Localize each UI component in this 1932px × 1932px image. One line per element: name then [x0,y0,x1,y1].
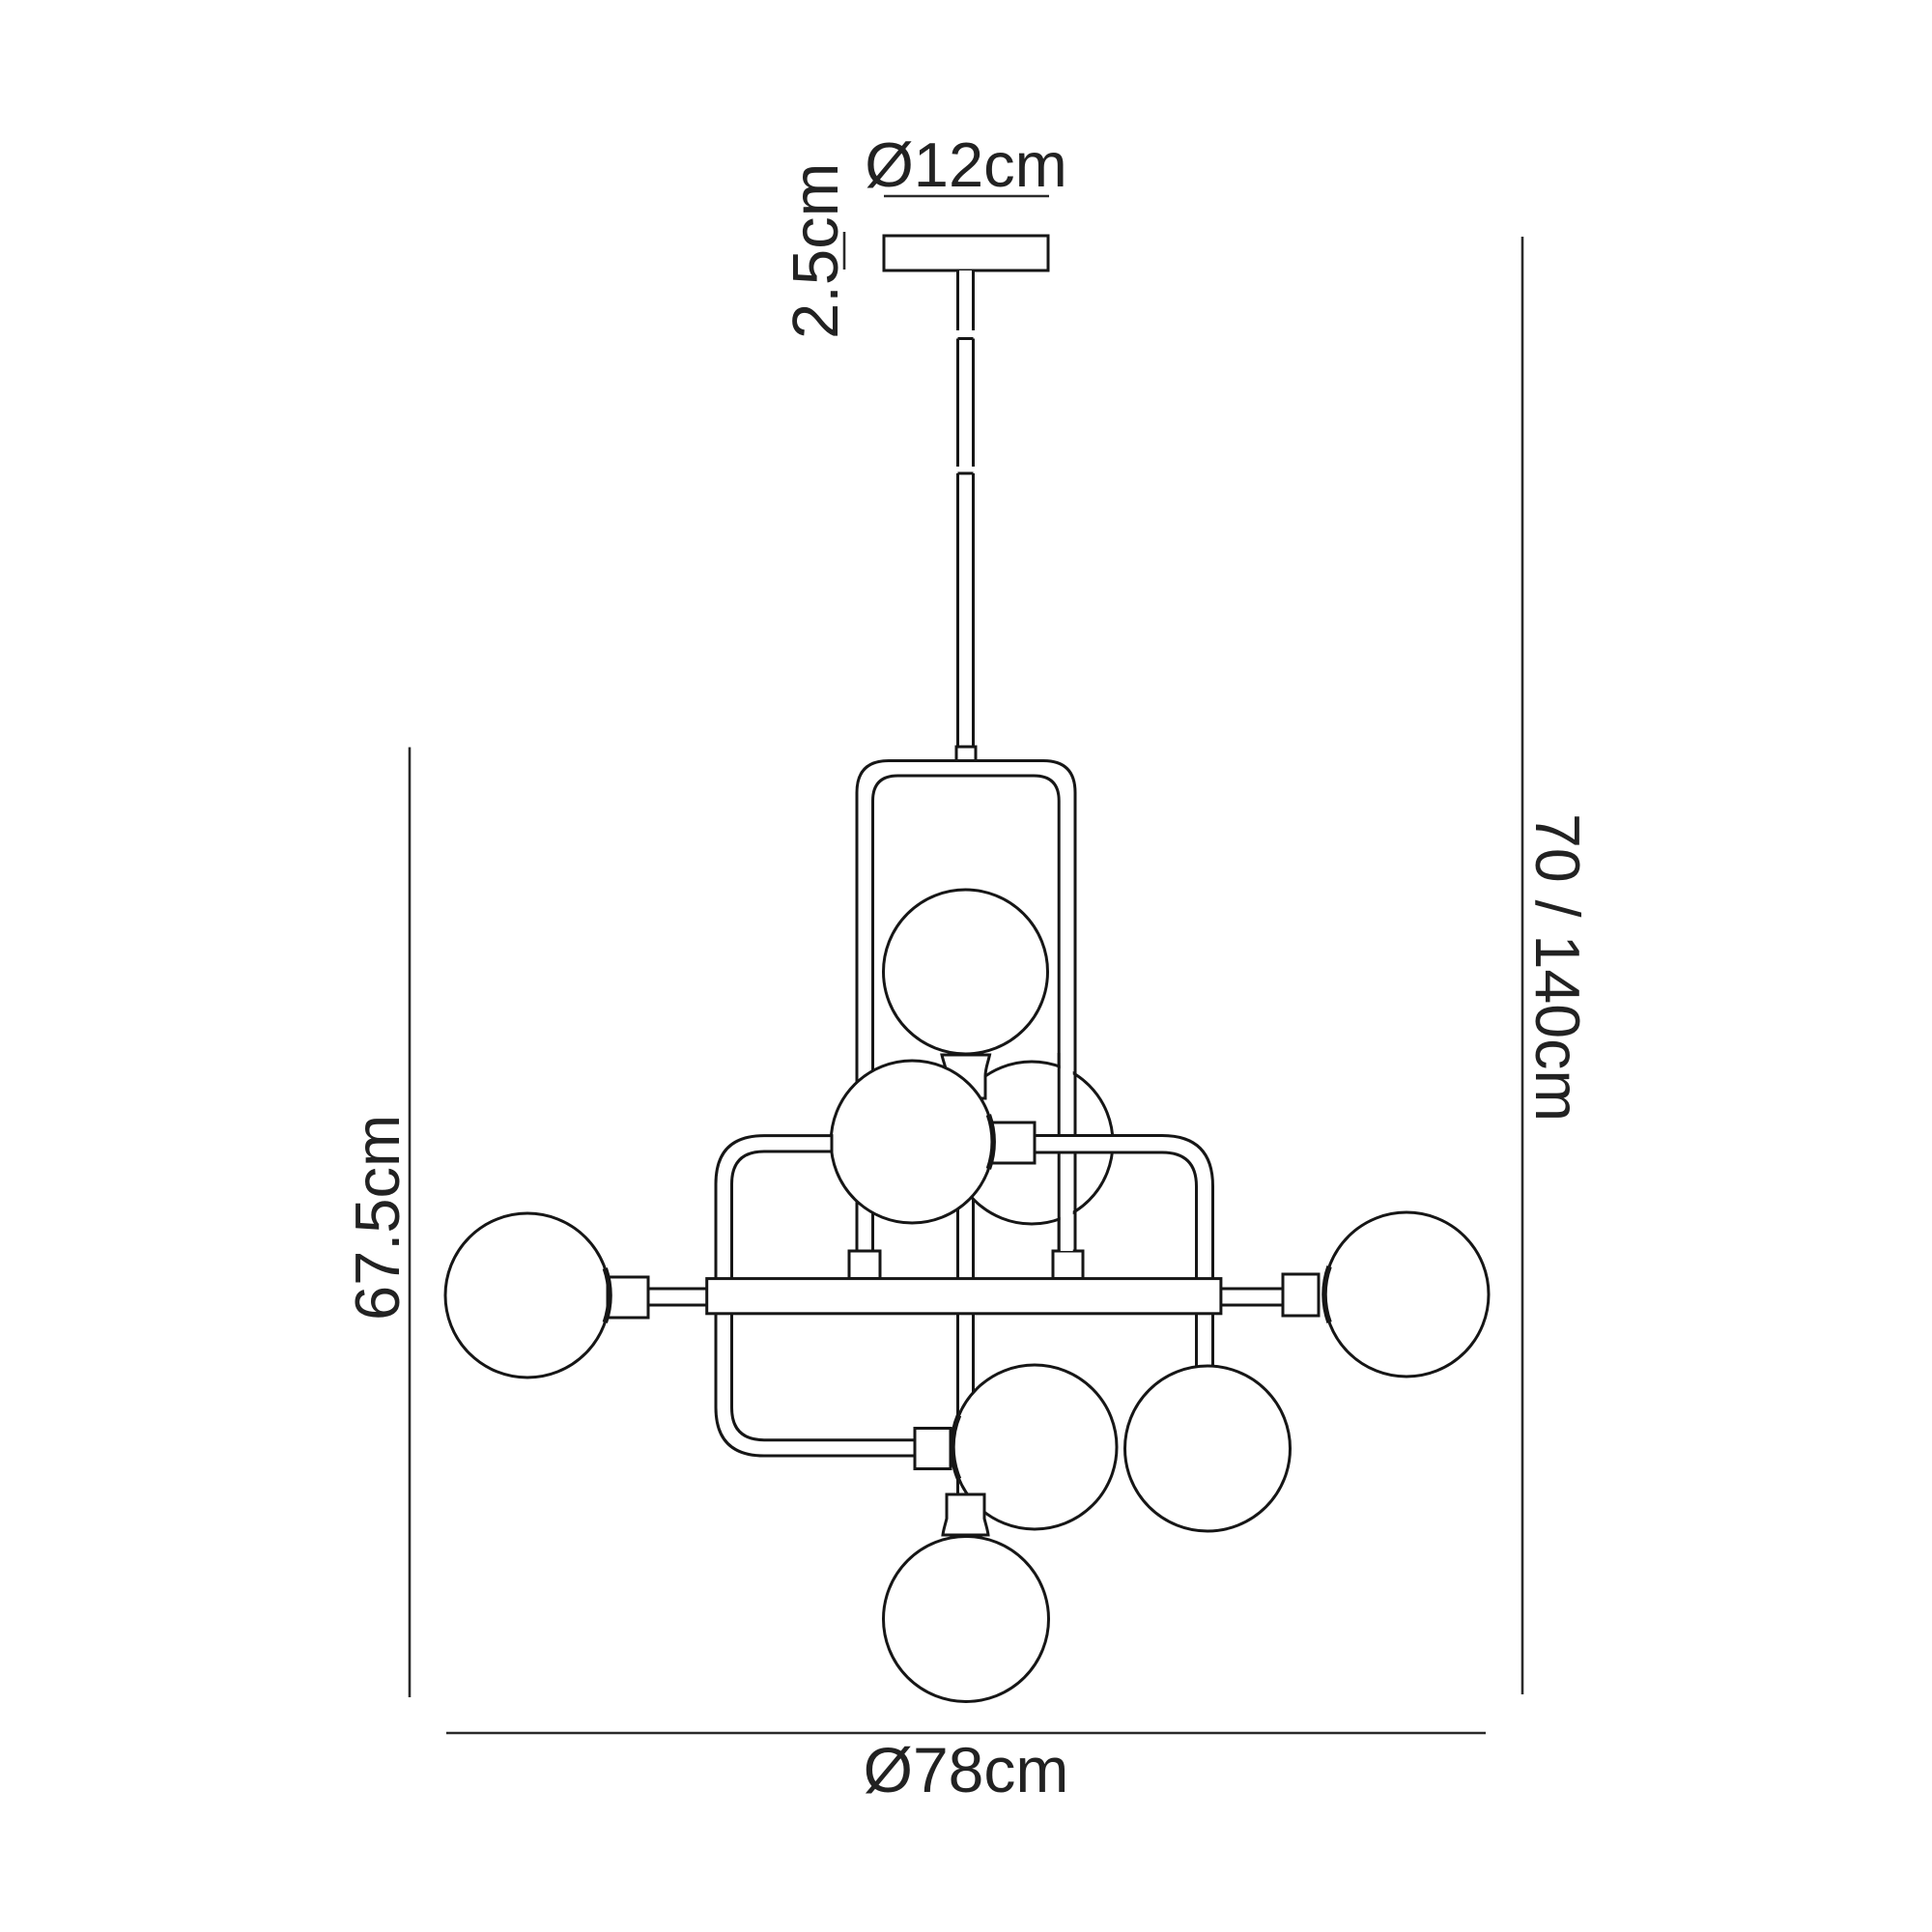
svg-text:70 / 140cm: 70 / 140cm [1522,813,1592,1122]
svg-text:Ø12cm: Ø12cm [865,129,1067,200]
svg-text:67.5cm: 67.5cm [342,1115,412,1321]
svg-text:Ø78cm: Ø78cm [864,1734,1069,1805]
svg-text:2.5cm: 2.5cm [780,163,852,339]
